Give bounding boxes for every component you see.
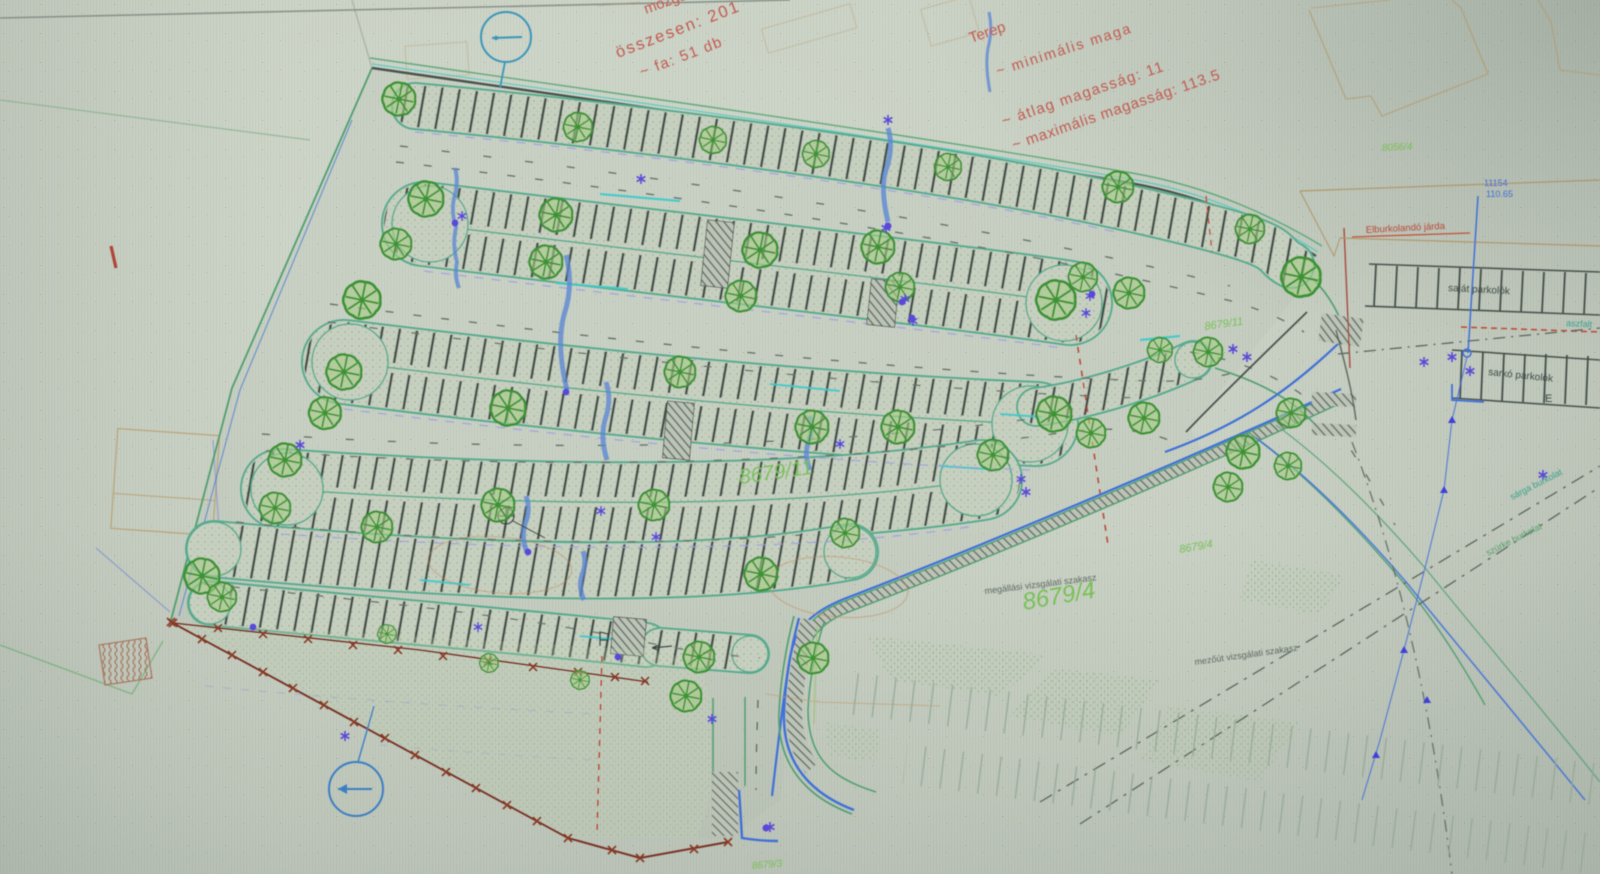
svg-text:E: E — [1545, 393, 1552, 405]
svg-text:aszfalt: aszfalt — [1566, 318, 1593, 329]
svg-text:8056/4: 8056/4 — [1382, 141, 1414, 154]
svg-text:11154: 11154 — [1484, 178, 1508, 188]
svg-text:110.65: 110.65 — [1486, 189, 1513, 199]
